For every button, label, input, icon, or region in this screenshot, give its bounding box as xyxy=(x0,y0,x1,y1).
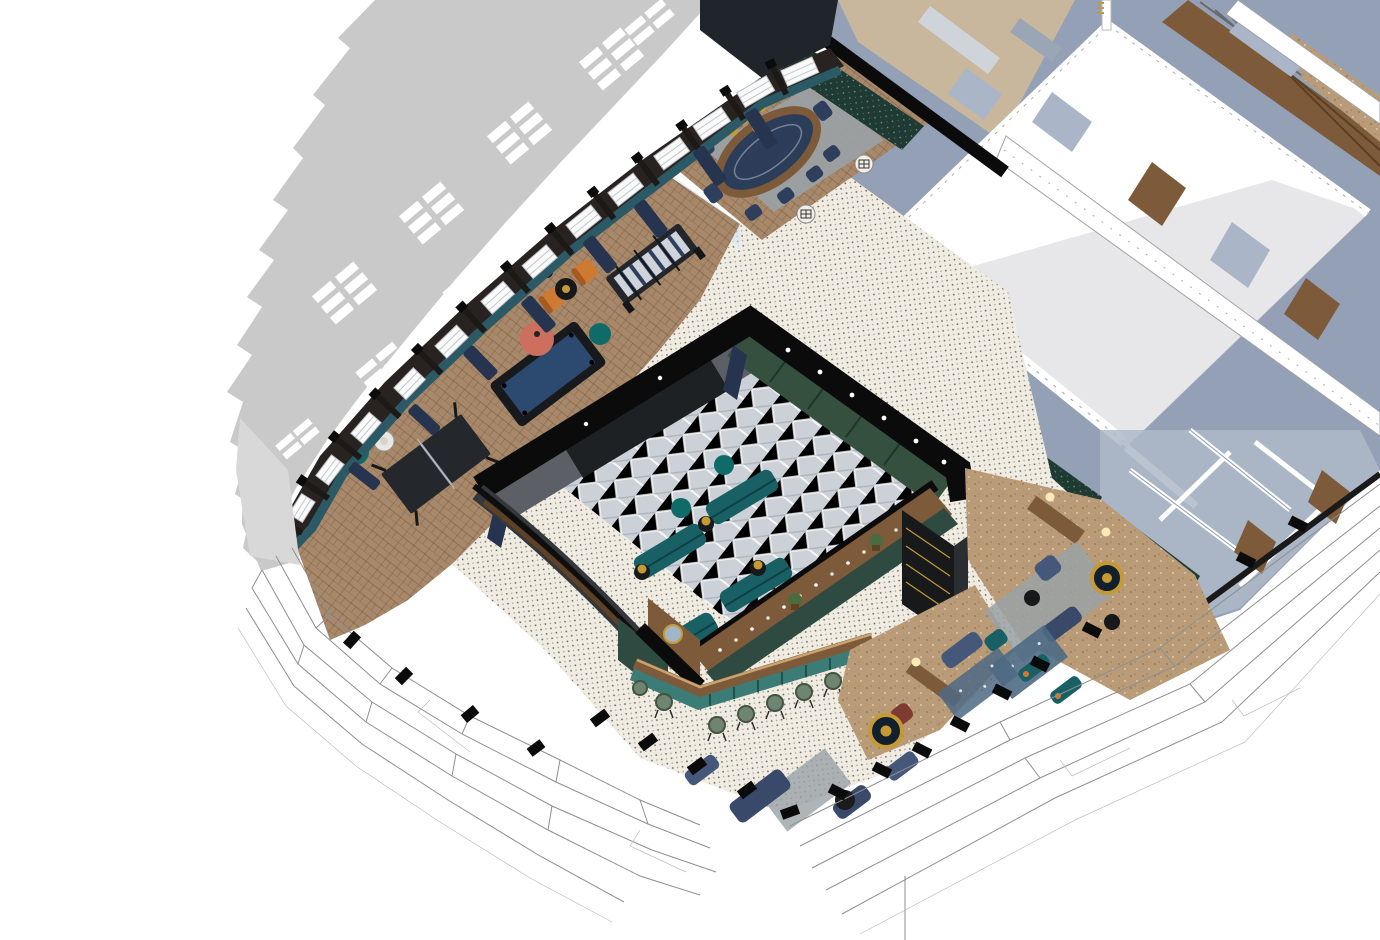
fire-table xyxy=(870,715,902,747)
fire-table xyxy=(1092,563,1122,593)
table-lamp xyxy=(912,658,921,667)
side-table xyxy=(1104,614,1120,630)
side-table xyxy=(1024,590,1040,606)
teal-pouf xyxy=(589,323,611,345)
floorplan-render xyxy=(0,0,1380,940)
table-lamp xyxy=(1046,493,1055,502)
render-canvas xyxy=(0,0,1380,940)
teal-chaise xyxy=(1048,674,1084,706)
theater-pouf xyxy=(714,455,734,475)
table-lamp xyxy=(1102,528,1111,537)
theater-pouf xyxy=(671,498,691,518)
parapet-post xyxy=(1102,0,1111,30)
